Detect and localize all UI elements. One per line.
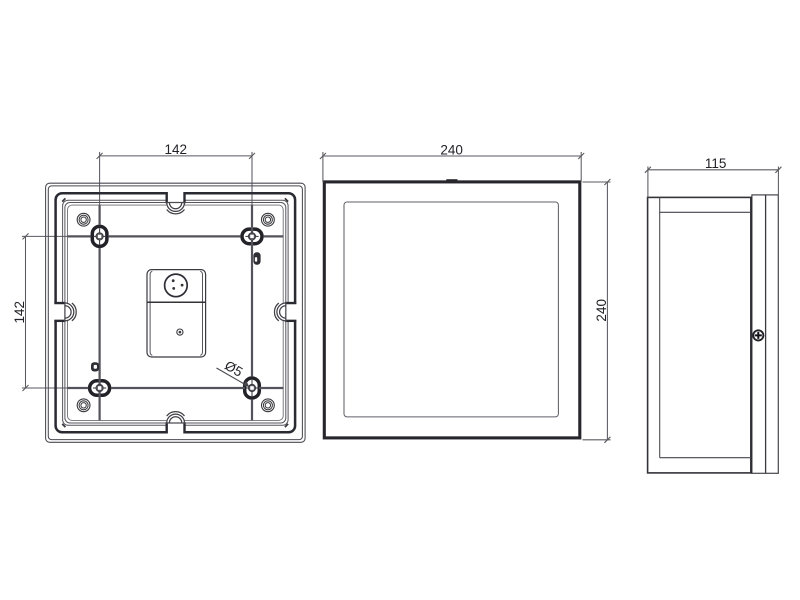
svg-text:240: 240 xyxy=(440,142,463,157)
svg-text:115: 115 xyxy=(705,156,727,171)
svg-text:142: 142 xyxy=(12,301,27,324)
svg-text:142: 142 xyxy=(165,142,188,157)
svg-text:240: 240 xyxy=(594,299,609,322)
